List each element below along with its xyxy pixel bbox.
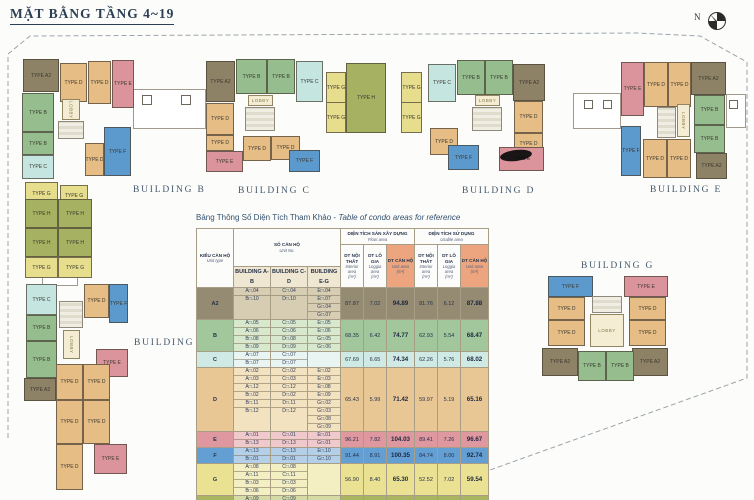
unit-number: C□.02	[271, 368, 307, 376]
col-unit-no: SỐ CĂN HỘ Unit No.	[234, 229, 341, 267]
table-row-type-h: HA□.09A□.10B□.04B□.05C□.09C□.10D□.04D□.0…	[197, 496, 489, 500]
floor-loggia: 8.91	[364, 448, 387, 464]
unit-type-a2: TYPE A2	[206, 61, 235, 102]
table-row-type-b: BA□.05A□.06B□.08B□.09C□.05C□.06D□.08D□.0…	[197, 320, 489, 352]
elevator-core	[592, 296, 622, 313]
elevator-core	[59, 301, 83, 328]
unit-number: C□.13	[271, 448, 307, 456]
condo-areas-table: KIỂU CĂN HỘ Unit type SỐ CĂN HỘ Unit No.…	[196, 228, 489, 500]
usable-unit-area: 68.47	[461, 320, 489, 352]
floor-interior: 67.69	[341, 352, 364, 368]
unit-type-d: TYPE D	[206, 103, 234, 135]
building-label-e: BUILDING E	[650, 185, 722, 195]
unit-type-b: TYPE B	[606, 351, 634, 381]
usable-interior: 81.76	[415, 288, 438, 320]
unit-type-d: TYPE D	[667, 139, 691, 178]
usable-loggia: 6.12	[438, 288, 461, 320]
unit-number: E□.09	[308, 392, 340, 400]
unit-number: E□.07	[308, 296, 340, 304]
lobby: LOBBY	[590, 314, 624, 347]
unit-type-cell: A2	[197, 288, 234, 320]
unit-type-b: TYPE B	[26, 341, 57, 378]
unit-number: C□.11	[271, 472, 307, 480]
unit-number: D□.03	[271, 480, 307, 488]
unit-number: C□.08	[271, 464, 307, 472]
unit-type-b: TYPE B	[485, 60, 513, 95]
usable-loggia: 7.26	[438, 432, 461, 448]
unit-number: A□.03	[234, 376, 270, 384]
unit-numbers-eg: E□.01G□.01	[308, 432, 341, 448]
unit-type-cell: F	[197, 448, 234, 464]
unit-numbers-eg	[308, 352, 341, 368]
unit-number: D□.13	[271, 440, 307, 447]
unit-number: D□.10	[271, 296, 307, 303]
floor-unit-area: 75.99	[387, 496, 415, 500]
unit-type-f: TYPE F	[621, 126, 641, 176]
floor-unit-area: 74.77	[387, 320, 415, 352]
lobby: LOBBY	[677, 104, 690, 137]
unit-type-b: TYPE B	[694, 125, 725, 153]
usable-unit-area: 96.67	[461, 432, 489, 448]
col-building-eg: BUILDING E-G	[308, 267, 341, 288]
unit-type-d: TYPE D	[85, 143, 104, 176]
unit-number: C□.06	[271, 328, 307, 336]
table-row-type-d: DA□.02A□.03A□.12B□.02B□.11B□.12C□.02C□.0…	[197, 368, 489, 432]
unit-type-a2: TYPE A2	[632, 348, 668, 376]
unit-type-b: TYPE B	[22, 93, 54, 132]
group-floor-area: DIỆN TÍCH SÀN XÂY DỰNG Floor area	[341, 229, 415, 245]
unit-number: D□.07	[271, 360, 307, 367]
unit-numbers-cd: C□.01D□.13	[271, 432, 308, 448]
unit-numbers-ab: A□.07B□.07	[234, 352, 271, 368]
unit-type-b: TYPE B	[26, 315, 57, 341]
unit-type-d: TYPE D	[629, 297, 666, 320]
unit-number: A□.09	[234, 496, 270, 500]
floor-interior: 68.35	[341, 320, 364, 352]
unit-type-h: TYPE H	[346, 63, 386, 133]
unit-number: B□.06	[234, 488, 270, 495]
unit-type-f: TYPE F	[548, 276, 593, 297]
col-unit-type: KIỂU CĂN HỘ Unit type	[197, 229, 234, 288]
usable-interior: 59.97	[415, 368, 438, 432]
table-row-type-c: CA□.07B□.07C□.07D□.0767.696.6574.3462.26…	[197, 352, 489, 368]
unit-number: G□.01	[308, 440, 340, 447]
lobby: LOBBY	[248, 95, 273, 106]
structural-column	[181, 95, 191, 105]
unit-numbers-eg: E□.02E□.03E□.08E□.09G□.02G□.03G□.08G□.09	[308, 368, 341, 432]
unit-type-g: TYPE G	[401, 72, 422, 103]
unit-number: A□.12	[234, 384, 270, 392]
lobby: LOBBY	[62, 99, 80, 120]
unit-number: D□.08	[271, 336, 307, 344]
table-row-type-a2: A2A□.04B□.10C□.04D□.10E□.04E□.07G□.04G□.…	[197, 288, 489, 320]
unit-type-b: TYPE B	[22, 132, 54, 155]
unit-type-d: TYPE D	[629, 320, 666, 346]
unit-type-c: TYPE C	[22, 155, 54, 179]
floor-plan-sheet: MẶT BẰNG TẦNG 4~19 N TYPE A2TYPE DTYPE D…	[0, 0, 754, 500]
page-title: MẶT BẰNG TẦNG 4~19	[10, 6, 174, 25]
unit-number: C□.01	[271, 432, 307, 440]
floor-interior: 96.21	[341, 432, 364, 448]
unit-numbers-cd: C□.04D□.10	[271, 288, 308, 320]
floor-interior: 87.87	[341, 288, 364, 320]
usable-loggia: 6.81	[438, 496, 461, 500]
unit-number: E□.06	[308, 328, 340, 336]
unit-number: B□.01	[234, 456, 270, 463]
unit-type-g: TYPE G	[326, 102, 346, 133]
floor-interior: 91.44	[341, 448, 364, 464]
unit-numbers-ab: A□.04B□.10	[234, 288, 271, 320]
unit-type-e: TYPE E	[94, 444, 127, 474]
unit-type-d: TYPE D	[83, 400, 110, 444]
compass-north-label: N	[694, 12, 701, 22]
unit-type-c: TYPE C	[296, 61, 323, 102]
unit-number: B□.09	[234, 344, 270, 351]
unit-number: G□.08	[308, 416, 340, 424]
unit-type-h: TYPE H	[25, 228, 58, 257]
unit-type-cell: C	[197, 352, 234, 368]
floor-loggia: 6.42	[364, 320, 387, 352]
unit-type-g: TYPE G	[58, 257, 92, 278]
unit-type-a2: TYPE A2	[23, 59, 59, 92]
compass-icon	[704, 8, 730, 34]
floor-loggia: 6.65	[364, 352, 387, 368]
table-caption-en: Table of condo areas for reference	[338, 213, 460, 222]
usable-unit-area: 70.44	[461, 496, 489, 500]
unit-numbers-eg	[308, 464, 341, 496]
unit-type-cell: E	[197, 432, 234, 448]
unit-number: A□.11	[234, 472, 270, 480]
building-label-g: BUILDING G	[581, 261, 654, 271]
unit-type-d: TYPE D	[644, 62, 668, 107]
col-usable-interior: DT NỘI THẤT Interior area (m²)	[415, 245, 438, 288]
usable-unit-area: 65.16	[461, 368, 489, 432]
unit-type-d: TYPE D	[84, 284, 109, 318]
unit-numbers-eg: E□.04E□.07G□.04G□.07	[308, 288, 341, 320]
unit-number: B□.13	[234, 440, 270, 447]
unit-type-d: TYPE D	[88, 61, 111, 104]
building-label-b: BUILDING B	[133, 185, 206, 195]
unit-type-e: TYPE E	[624, 276, 668, 297]
unit-number: A□.04	[234, 288, 270, 296]
usable-unit-area: 87.88	[461, 288, 489, 320]
table-row-type-f: FA□.13B□.01C□.13D□.01E□.10G□.1091.448.91…	[197, 448, 489, 464]
floor-loggia: 5.99	[364, 368, 387, 432]
unit-type-e: TYPE E	[112, 60, 134, 108]
col-usable-unit-area: DT CĂN HỘ Unit area (m²)	[461, 245, 489, 288]
unit-type-b: TYPE B	[267, 59, 295, 94]
unit-type-d: TYPE D	[548, 320, 585, 346]
unit-numbers-cd: C□.09C□.10D□.04D□.05	[271, 496, 308, 500]
unit-number: G□.10	[308, 456, 340, 463]
unit-type-d: TYPE D	[668, 62, 691, 107]
unit-number: E□.02	[308, 368, 340, 376]
floor-loggia: 7.81	[364, 496, 387, 500]
unit-type-d: TYPE D	[56, 444, 83, 490]
usable-unit-area: 68.02	[461, 352, 489, 368]
unit-type-cell: B	[197, 320, 234, 352]
usable-loggia: 5.19	[438, 368, 461, 432]
unit-number: D□.01	[271, 456, 307, 463]
unit-type-a2: TYPE A2	[24, 378, 56, 401]
unit-number: B□.07	[234, 360, 270, 367]
unit-type-c: TYPE C	[428, 64, 456, 102]
lobby: LOBBY	[475, 95, 500, 106]
usable-loggia: 8.00	[438, 448, 461, 464]
unit-number: G□.07	[308, 312, 340, 319]
unit-number: A□.01	[234, 432, 270, 440]
unit-type-f: TYPE F	[109, 284, 128, 323]
unit-type-d: TYPE D	[83, 364, 110, 400]
unit-type-g: TYPE G	[401, 102, 422, 133]
usable-unit-area: 92.74	[461, 448, 489, 464]
elevator-core	[472, 107, 502, 131]
compass: N	[694, 8, 734, 34]
unit-number: B□.02	[234, 392, 270, 400]
usable-loggia: 5.76	[438, 352, 461, 368]
usable-interior: 62.93	[415, 320, 438, 352]
unit-numbers-eg	[308, 496, 341, 500]
floor-unit-area: 65.30	[387, 464, 415, 496]
unit-type-d: TYPE D	[56, 364, 83, 400]
unit-number: D□.02	[271, 392, 307, 400]
unit-type-e: TYPE E	[206, 151, 243, 172]
unit-numbers-ab: A□.02A□.03A□.12B□.02B□.11B□.12	[234, 368, 271, 432]
unit-type-a2: TYPE A2	[513, 64, 545, 101]
col-usable-loggia: DT LÔ GIA Loggia area (m²)	[438, 245, 461, 288]
unit-number: A□.06	[234, 328, 270, 336]
unit-number: E□.08	[308, 384, 340, 392]
unit-type-a2: TYPE A2	[696, 153, 727, 179]
unit-number: A□.08	[234, 464, 270, 472]
group-usable-area: DIỆN TÍCH SỬ DỤNG Usable area	[415, 229, 489, 245]
unit-type-d: TYPE D	[56, 400, 83, 444]
floor-unit-area: 74.34	[387, 352, 415, 368]
unit-type-f: TYPE F	[448, 145, 479, 170]
unit-number: E□.04	[308, 288, 340, 296]
unit-type-d: TYPE D	[643, 139, 667, 178]
table-caption-vi: Bảng Thông Số Diện Tích Tham Khảo	[196, 213, 331, 222]
unit-type-g: TYPE G	[25, 257, 58, 278]
structural-column	[603, 100, 612, 109]
elevator-core	[245, 107, 275, 131]
unit-type-d: TYPE D	[60, 63, 87, 102]
unit-number: D□.06	[271, 488, 307, 495]
unit-number: B□.03	[234, 480, 270, 488]
unit-numbers-ab: A□.05A□.06B□.08B□.09	[234, 320, 271, 352]
floor-interior: 56.90	[341, 464, 364, 496]
unit-number: G□.04	[308, 304, 340, 312]
floor-unit-area: 100.35	[387, 448, 415, 464]
unit-number: G□.05	[308, 336, 340, 344]
unit-type-d: TYPE D	[548, 297, 585, 320]
col-building-cd: BUILDING C-D	[271, 267, 308, 288]
col-floor-unit-area: DT CĂN HỘ Unit area (m²)	[387, 245, 415, 288]
unit-numbers-eg: E□.10G□.10	[308, 448, 341, 464]
unit-type-d: TYPE D	[243, 136, 271, 161]
unit-numbers-cd: C□.05C□.06D□.08D□.09	[271, 320, 308, 352]
col-building-ab: BUILDING A-B	[234, 267, 271, 288]
unit-numbers-ab: A□.01B□.13	[234, 432, 271, 448]
unit-number: G□.06	[308, 344, 340, 351]
unit-numbers-cd: C□.08C□.11D□.03D□.06	[271, 464, 308, 496]
unit-numbers-cd: C□.07D□.07	[271, 352, 308, 368]
unit-type-h: TYPE H	[25, 199, 58, 228]
structural-column	[729, 100, 738, 109]
unit-type-cell: G	[197, 464, 234, 496]
usable-interior: 84.74	[415, 448, 438, 464]
lobby: LOBBY	[63, 330, 80, 359]
unit-number: E□.01	[308, 432, 340, 440]
unit-numbers-cd: C□.02C□.03C□.12D□.02D□.11D□.12	[271, 368, 308, 432]
unit-type-b: TYPE B	[457, 60, 485, 95]
unit-number: B□.08	[234, 336, 270, 344]
usable-interior: 62.26	[415, 352, 438, 368]
table-caption: Bảng Thông Số Diện Tích Tham Khảo - Tabl…	[196, 213, 488, 222]
usable-interior: 52.52	[415, 464, 438, 496]
structural-column	[142, 95, 152, 105]
unit-number: C□.07	[271, 352, 307, 360]
unit-numbers-ab: A□.08A□.11B□.03B□.06	[234, 464, 271, 496]
unit-number: E□.05	[308, 320, 340, 328]
floor-loggia: 7.82	[364, 432, 387, 448]
unit-numbers-eg: E□.05E□.06G□.05G□.06	[308, 320, 341, 352]
unit-number: B□.11	[234, 400, 270, 408]
table-row-type-e: EA□.01B□.13C□.01D□.13E□.01G□.0196.217.82…	[197, 432, 489, 448]
unit-number: D□.12	[271, 408, 307, 415]
unit-type-f: TYPE F	[289, 150, 320, 172]
unit-type-e: TYPE E	[621, 62, 644, 116]
unit-type-b: TYPE B	[694, 95, 725, 125]
floor-unit-area: 104.03	[387, 432, 415, 448]
unit-type-b: TYPE B	[578, 351, 606, 381]
unit-type-h: TYPE H	[58, 228, 92, 257]
unit-number: A□.13	[234, 448, 270, 456]
unit-numbers-ab: A□.13B□.01	[234, 448, 271, 464]
usable-loggia: 5.54	[438, 320, 461, 352]
unit-number: C□.03	[271, 376, 307, 384]
unit-number: A□.07	[234, 352, 270, 360]
unit-type-f: TYPE F	[104, 127, 131, 176]
unit-type-d: TYPE D	[514, 101, 543, 133]
unit-number: G□.02	[308, 400, 340, 408]
unit-type-d: TYPE D	[206, 135, 234, 151]
unit-type-cell: H	[197, 496, 234, 500]
usable-loggia: 7.02	[438, 464, 461, 496]
building-label-c: BUILDING C	[238, 186, 311, 196]
building-label-d: BUILDING D	[462, 186, 535, 196]
unit-number: C□.12	[271, 384, 307, 392]
unit-number: E□.10	[308, 448, 340, 456]
usable-interior: 63.63	[415, 496, 438, 500]
unit-type-g: TYPE G	[326, 72, 346, 103]
unit-number: B□.10	[234, 296, 270, 303]
unit-type-c: TYPE C	[26, 284, 57, 315]
unit-type-a2: TYPE A2	[542, 348, 578, 376]
unit-number: G□.09	[308, 424, 340, 431]
unit-number: C□.05	[271, 320, 307, 328]
floor-unit-area: 94.89	[387, 288, 415, 320]
corridor	[573, 93, 621, 129]
unit-number: A□.05	[234, 320, 270, 328]
elevator-core	[657, 107, 676, 138]
unit-type-cell: D	[197, 368, 234, 432]
unit-type-a2: TYPE A2	[691, 62, 726, 95]
floor-loggia: 8.40	[364, 464, 387, 496]
unit-number: D□.09	[271, 344, 307, 351]
col-floor-loggia: DT LÔ GIA Loggia area (m²)	[364, 245, 387, 288]
unit-numbers-ab: A□.09A□.10B□.04B□.05	[234, 496, 271, 500]
unit-number: B□.12	[234, 408, 270, 415]
unit-type-b: TYPE B	[236, 59, 267, 94]
unit-number: D□.11	[271, 400, 307, 408]
unit-number: E□.03	[308, 376, 340, 384]
structural-column	[584, 100, 593, 109]
floor-interior: 65.43	[341, 368, 364, 432]
unit-number: C□.09	[271, 496, 307, 500]
area-table-section: Bảng Thông Số Diện Tích Tham Khảo - Tabl…	[196, 213, 488, 500]
elevator-core	[58, 121, 84, 139]
table-row-type-g: GA□.08A□.11B□.03B□.06C□.08C□.11D□.03D□.0…	[197, 464, 489, 496]
unit-number: G□.03	[308, 408, 340, 416]
floor-unit-area: 71.42	[387, 368, 415, 432]
col-floor-interior: DT NỘI THẤT Interior area (m²)	[341, 245, 364, 288]
floor-interior: 68.18	[341, 496, 364, 500]
usable-interior: 89.41	[415, 432, 438, 448]
usable-unit-area: 59.54	[461, 464, 489, 496]
floor-loggia: 7.02	[364, 288, 387, 320]
unit-numbers-cd: C□.13D□.01	[271, 448, 308, 464]
unit-number: A□.02	[234, 368, 270, 376]
unit-type-h: TYPE H	[58, 199, 92, 228]
unit-number: C□.04	[271, 288, 307, 296]
